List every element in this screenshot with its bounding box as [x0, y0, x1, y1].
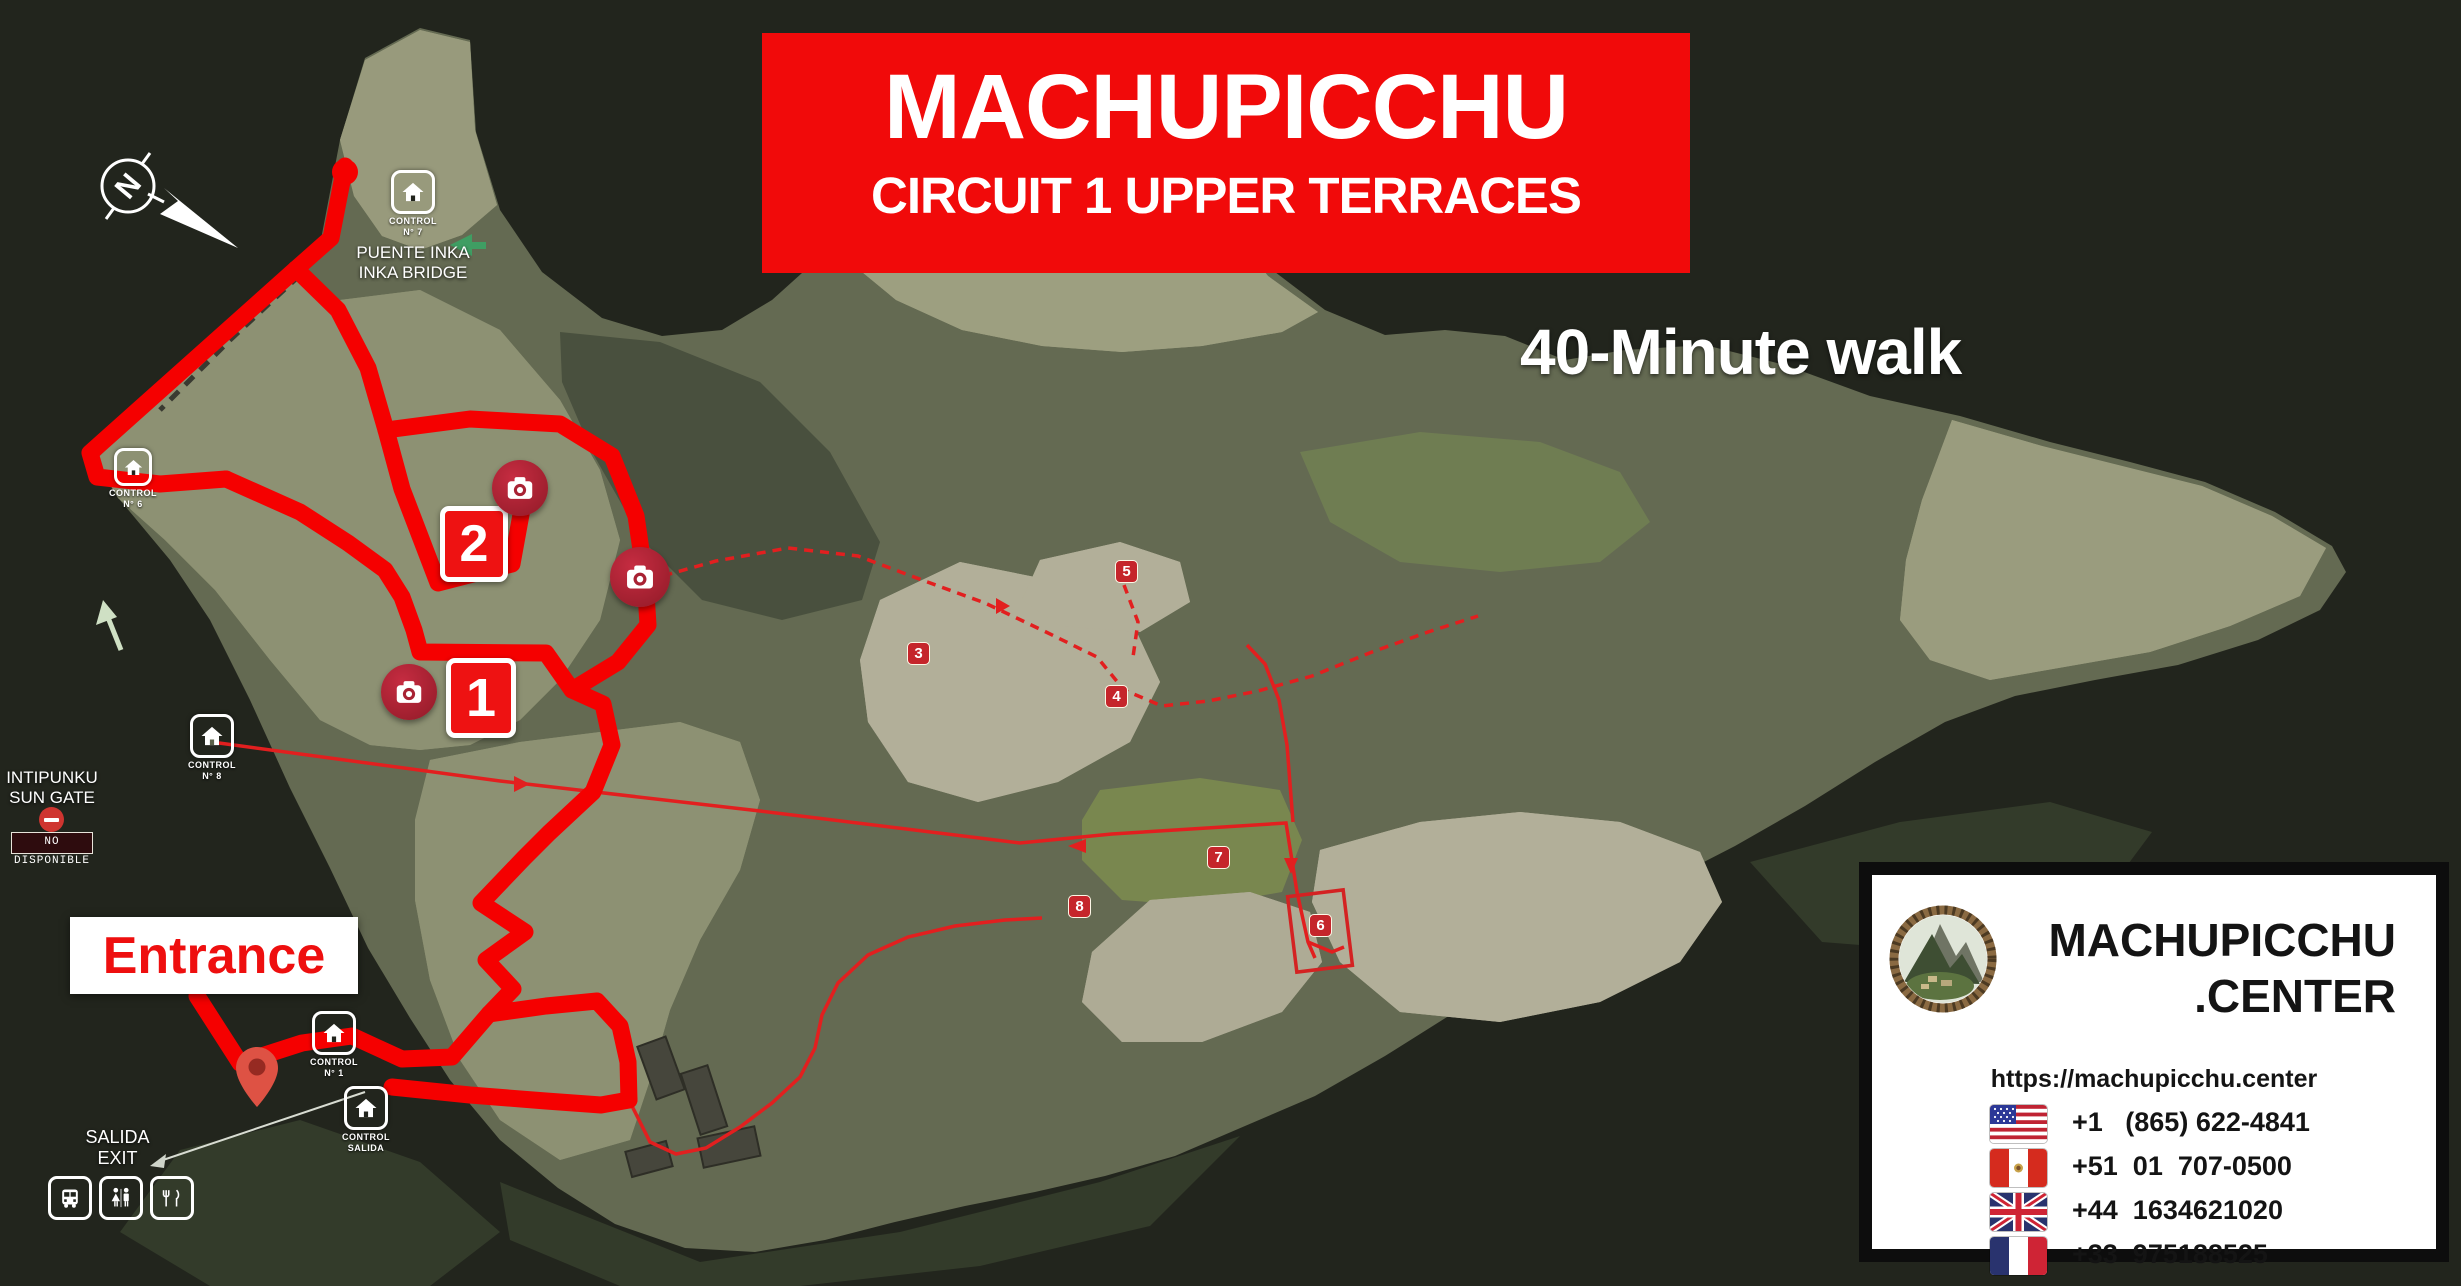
phone-row-uk: +44 1634621020	[1872, 1193, 2436, 1231]
not-available-badge: NO DISPONIBLE	[11, 832, 93, 854]
phone-row-france: +33 975188525	[1872, 1237, 2436, 1275]
entrance-map-pin	[235, 1046, 279, 1108]
restaurant-icon	[150, 1176, 194, 1220]
brand-name-line2: .CENTER	[2194, 969, 2396, 1023]
circuit-stop-1: 1	[446, 658, 516, 738]
photo-spot-icon	[381, 664, 437, 720]
phone-row-peru: +51 01 707-0500	[1872, 1149, 2436, 1187]
contact-card-inner: MACHUPICCHU .CENTER https://machupicchu.…	[1872, 875, 2436, 1249]
control-salida: CONTROLSALIDA	[296, 1086, 436, 1155]
entrance-label-box: Entrance	[70, 917, 358, 994]
usa-flag-icon	[1990, 1105, 2047, 1143]
circuit-stop-3: 3	[907, 642, 930, 665]
circuit-stop-8: 8	[1068, 895, 1091, 918]
circuit-stop-4: 4	[1105, 685, 1128, 708]
phone-number: +44 1634621020	[2072, 1195, 2283, 1226]
walk-time-note: 40-Minute walk	[1520, 315, 1961, 389]
peru-flag-icon	[1990, 1149, 2047, 1187]
brand-url: https://machupicchu.center	[1872, 1065, 2436, 1094]
bus-icon	[48, 1176, 92, 1220]
brand-contact-card: MACHUPICCHU .CENTER https://machupicchu.…	[1859, 862, 2449, 1262]
title-banner: MACHUPICCHU CIRCUIT 1 UPPER TERRACES	[762, 33, 1690, 273]
brand-name-line1: MACHUPICCHU	[2048, 913, 2396, 967]
control-house-icon	[344, 1086, 388, 1130]
svg-text:N: N	[109, 167, 148, 205]
phone-number: +51 01 707-0500	[2072, 1151, 2292, 1182]
no-entry-icon	[39, 807, 64, 832]
control-8: CONTROLN° 8	[142, 714, 282, 783]
map-title: MACHUPICCHU	[762, 55, 1690, 160]
phone-row-us: +1 (865) 622-4841	[1872, 1105, 2436, 1143]
france-flag-icon	[1990, 1237, 2047, 1275]
salida-exit-label: SALIDA EXIT	[60, 1127, 175, 1168]
control-6: CONTROLN° 6	[63, 448, 203, 511]
exit-amenity-icons	[48, 1176, 194, 1220]
uk-flag-icon	[1990, 1193, 2047, 1231]
phone-number: +33 975188525	[2072, 1239, 2268, 1270]
photo-spot-icon	[492, 460, 548, 516]
control-house-icon	[114, 448, 152, 486]
photo-spot-icon	[610, 547, 670, 607]
map-subtitle: CIRCUIT 1 UPPER TERRACES	[762, 166, 1690, 225]
circuit-stop-5: 5	[1115, 560, 1138, 583]
control-house-icon	[391, 170, 435, 214]
control-house-icon	[312, 1011, 356, 1055]
restroom-icon	[99, 1176, 143, 1220]
machupicchu-center-logo	[1888, 904, 1998, 1014]
control-1: CONTROLN° 1	[264, 1011, 404, 1080]
machupicchu-circuit-map: N CONTROLN° 7 PUENTE INKAINKA BRIDGE CON…	[0, 0, 2461, 1286]
circuit-stop-7: 7	[1207, 846, 1230, 869]
circuit-stop-6: 6	[1309, 914, 1332, 937]
circuit-stop-2: 2	[440, 506, 508, 582]
control-house-icon	[190, 714, 234, 758]
phone-number: +1 (865) 622-4841	[2072, 1107, 2310, 1138]
control-7-puente-inka: CONTROLN° 7 PUENTE INKAINKA BRIDGE	[343, 170, 483, 283]
intipunku-label: INTIPUNKU SUN GATE	[0, 768, 104, 807]
north-compass-icon: N	[90, 148, 265, 263]
green-arrow-sun-gate	[96, 600, 121, 650]
